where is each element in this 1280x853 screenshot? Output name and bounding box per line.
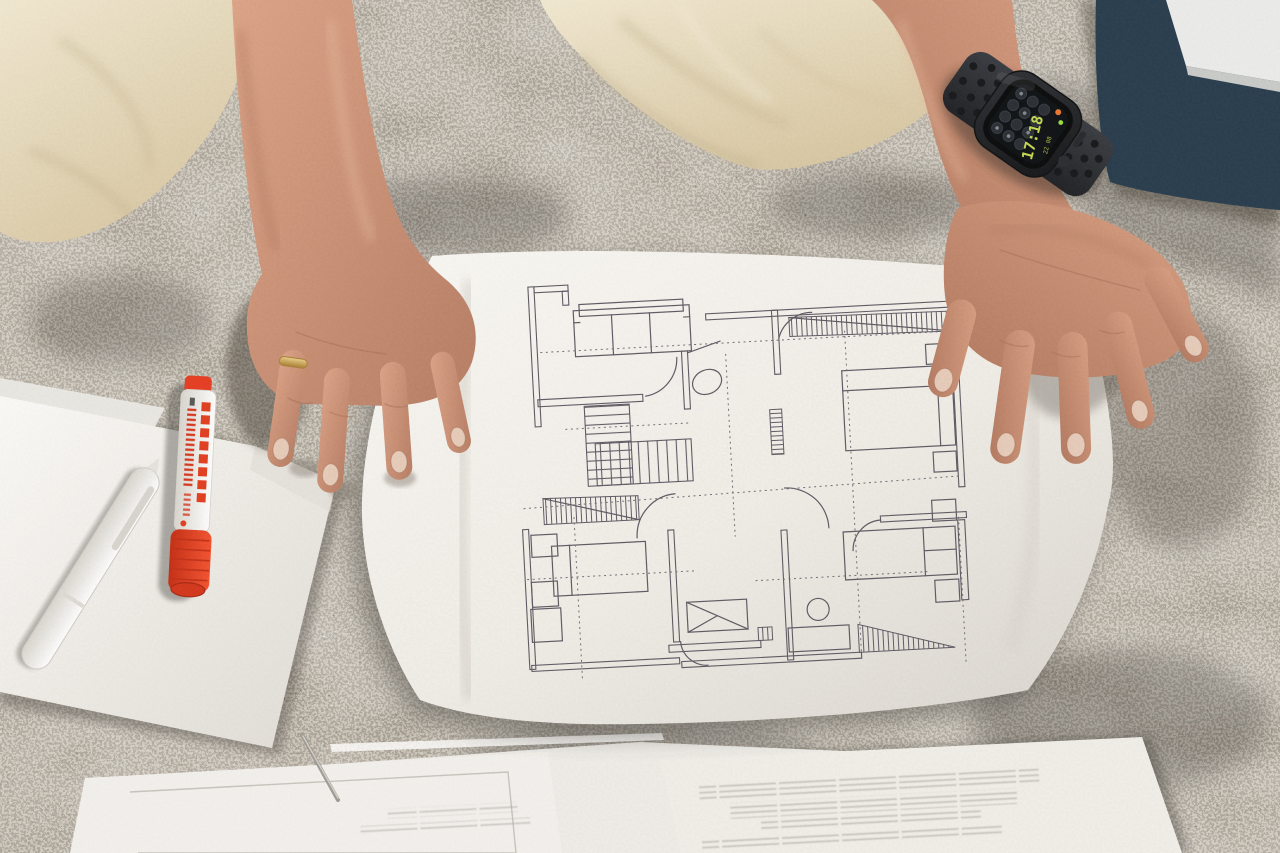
photo-scene: 17:18 22 08 bbox=[0, 0, 1280, 853]
photo-canvas: 17:18 22 08 bbox=[0, 0, 1280, 853]
photo-grain bbox=[0, 0, 1280, 853]
